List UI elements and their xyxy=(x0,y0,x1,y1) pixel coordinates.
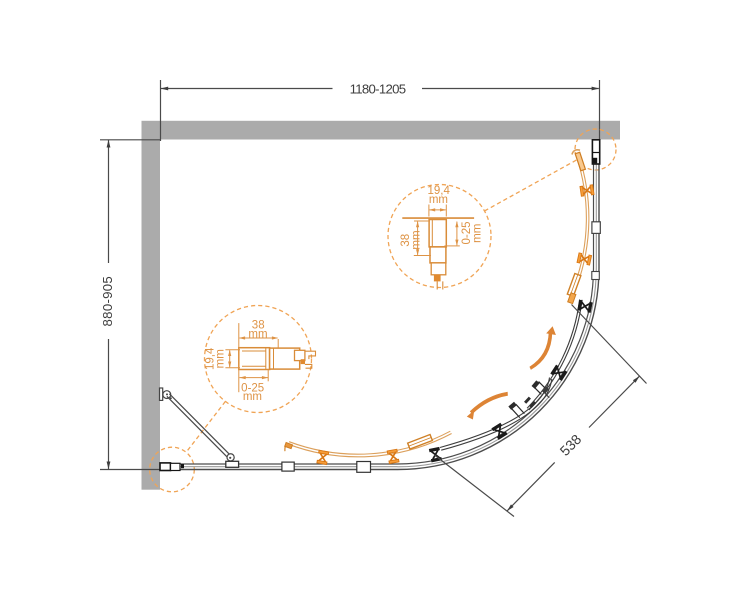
svg-text:mm: mm xyxy=(214,349,226,368)
svg-text:mm: mm xyxy=(410,230,422,249)
svg-text:mm: mm xyxy=(243,391,262,403)
svg-text:880-905: 880-905 xyxy=(100,276,115,327)
svg-text:mm: mm xyxy=(429,194,448,206)
svg-text:mm: mm xyxy=(471,224,483,243)
svg-text:1180-1205: 1180-1205 xyxy=(350,82,406,97)
svg-text:mm: mm xyxy=(248,328,267,340)
